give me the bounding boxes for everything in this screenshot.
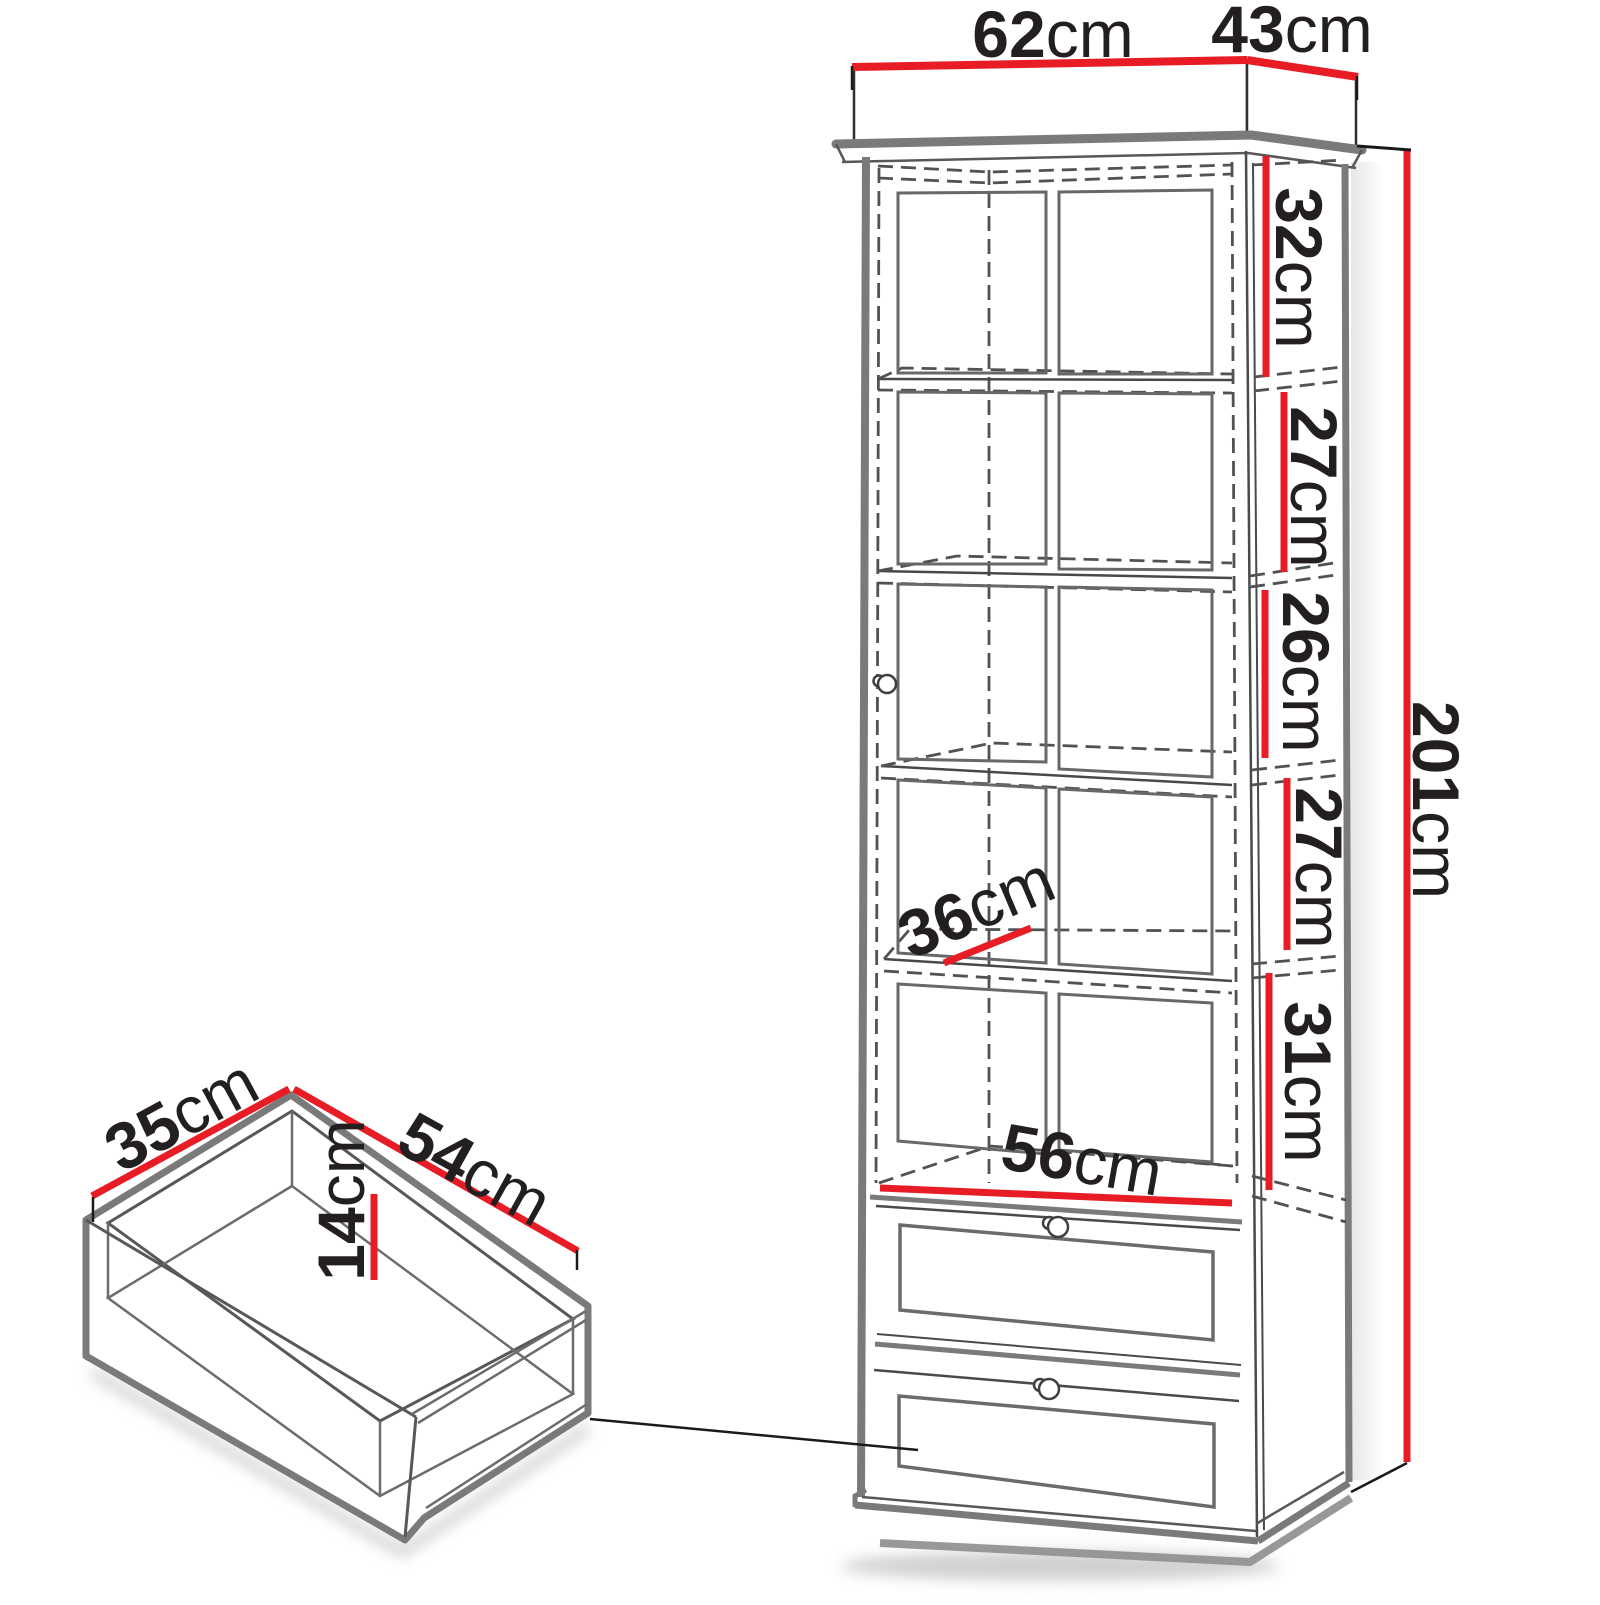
svg-text:43cm: 43cm [1211,0,1372,66]
svg-text:62cm: 62cm [972,0,1133,71]
svg-text:14cm: 14cm [304,1119,378,1280]
svg-text:27cm: 27cm [1277,406,1351,567]
svg-text:27cm: 27cm [1282,787,1356,948]
svg-text:201cm: 201cm [1399,701,1473,899]
svg-text:32cm: 32cm [1262,187,1336,348]
svg-text:26cm: 26cm [1269,591,1343,752]
svg-text:31cm: 31cm [1271,1001,1345,1162]
